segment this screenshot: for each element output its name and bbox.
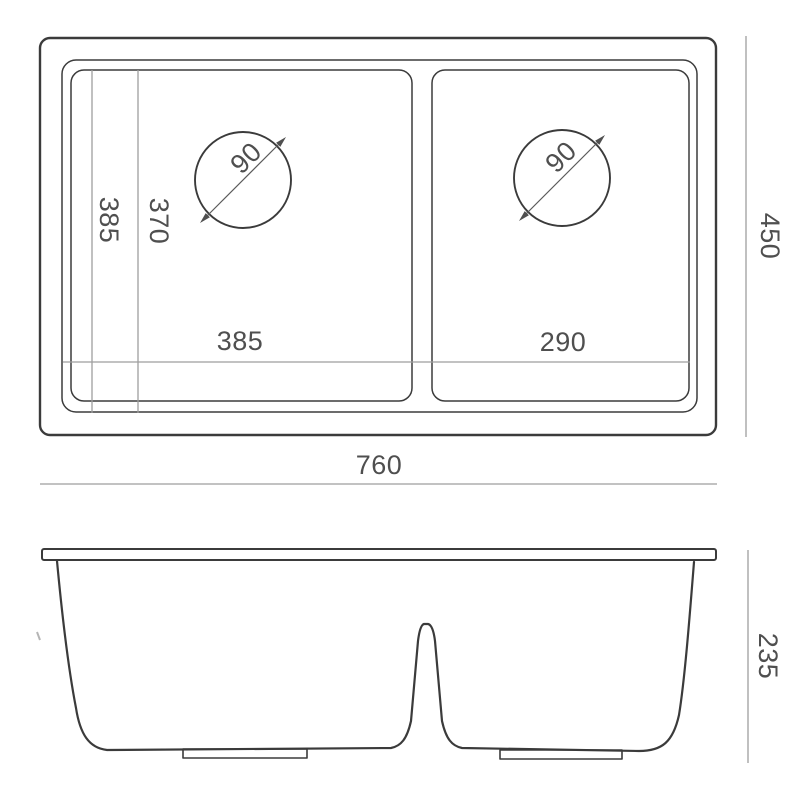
right-drain-diameter-label: 90 bbox=[539, 135, 582, 178]
overall-depth-label: 450 bbox=[755, 213, 785, 260]
sink-dimension-drawing: 90 90 385 370 385 290 760 450 235 bbox=[0, 0, 800, 794]
technical-drawing-page: 90 90 385 370 385 290 760 450 235 bbox=[0, 0, 800, 794]
bowl-depth-label: 385 bbox=[94, 197, 124, 244]
bowl-inner-depth-label: 370 bbox=[144, 198, 174, 245]
top-view: 90 90 385 370 385 290 760 450 bbox=[40, 36, 785, 484]
overall-width-label: 760 bbox=[356, 450, 403, 480]
sink-flange bbox=[42, 549, 716, 560]
overall-height-label: 235 bbox=[753, 633, 783, 680]
sink-outer-edge bbox=[40, 38, 716, 435]
left-drain-diameter-label: 90 bbox=[224, 136, 267, 179]
scan-speck-mark bbox=[37, 632, 40, 640]
right-bowl-width-label: 290 bbox=[540, 327, 587, 357]
front-view: 235 bbox=[37, 549, 783, 763]
left-bowl-width-label: 385 bbox=[217, 326, 264, 356]
basin-profile-outline bbox=[57, 561, 694, 751]
